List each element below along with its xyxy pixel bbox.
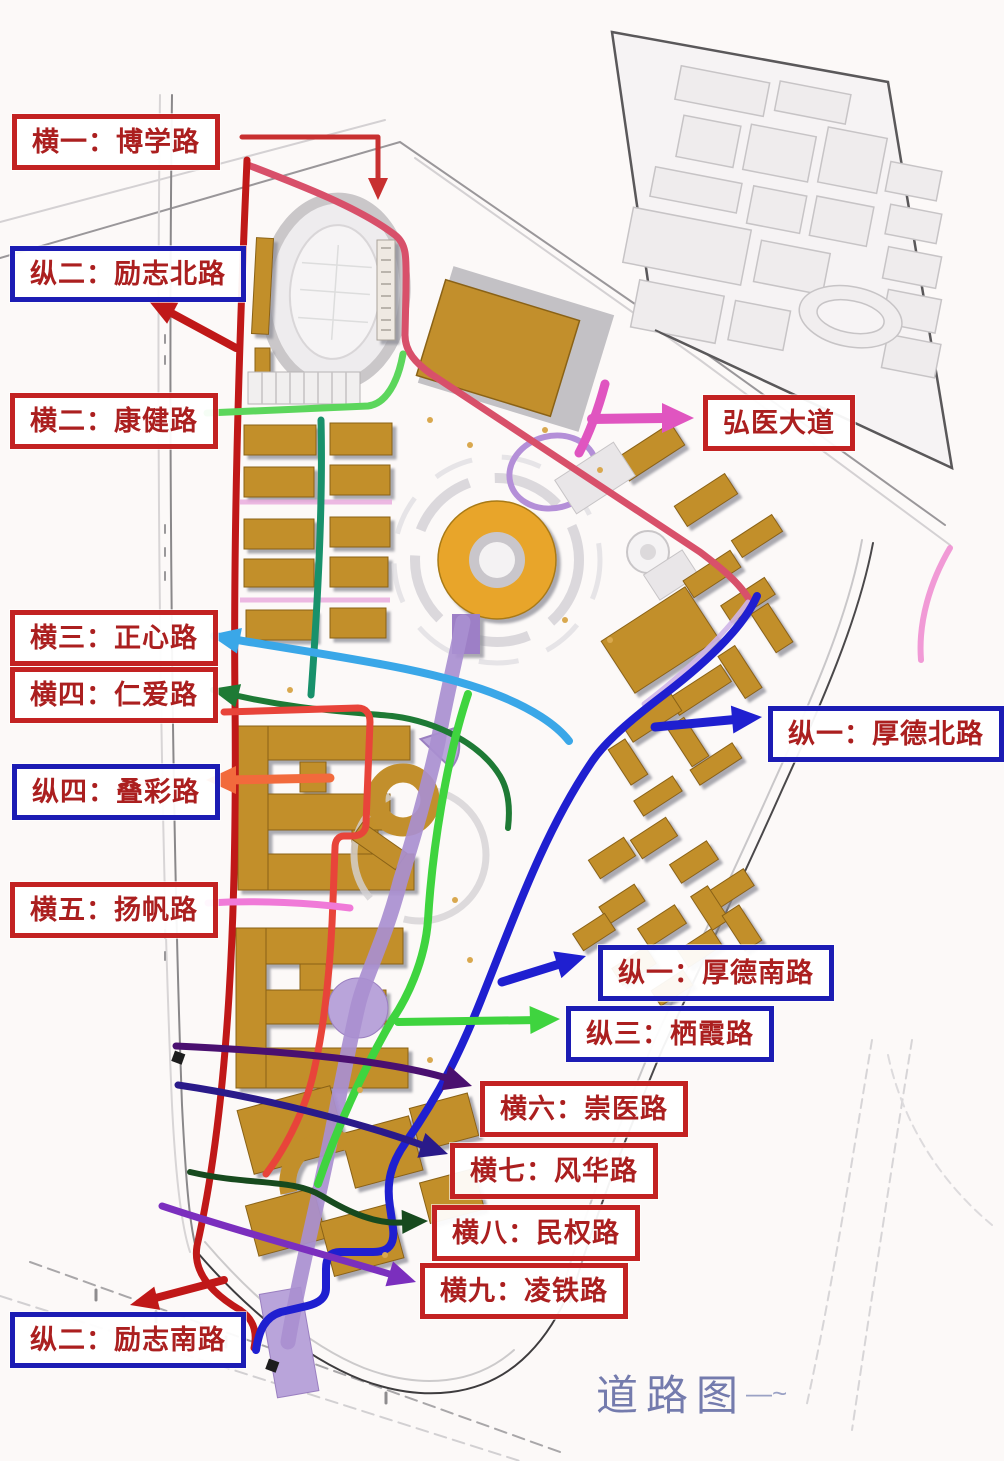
map-title: 道路图—~ [596, 1362, 787, 1423]
road-label-heng9-lingtie: 横九：凌铁路 [420, 1263, 628, 1319]
road-label-zong2-lizhi-s: 纵二：励志南路 [10, 1312, 246, 1368]
houde-north-buildings [601, 550, 793, 816]
road-label-heng8-minquan: 横八：民权路 [432, 1205, 640, 1261]
road-label-zong2-lizhi-n: 纵二：励志北路 [10, 246, 246, 302]
sports-courts [248, 372, 360, 404]
map-title-text: 道路图 [596, 1372, 746, 1419]
road-label-zong3-qixia: 纵三：栖霞路 [566, 1006, 774, 1062]
road-label-heng7-fenghua: 横七：风华路 [450, 1143, 658, 1199]
road-label-heng5-yangfan: 横五：扬帆路 [10, 882, 218, 938]
road-zhengxin [214, 636, 569, 741]
road-label-heng1-boxue: 横一：博学路 [12, 114, 220, 170]
auditorium [416, 266, 614, 432]
road-label-zong4-diecai: 纵四：叠彩路 [12, 764, 220, 820]
road-yangfan [208, 902, 350, 908]
road-label-zong1-houde-s: 纵一：厚德南路 [598, 945, 834, 1001]
road-label-heng6-chongyi: 横六：崇医路 [480, 1081, 688, 1137]
midleft-dorms-upper [238, 726, 414, 890]
road-label-heng2-kangjian: 横二：康健路 [10, 393, 218, 449]
map-title-tail-mark: —~ [746, 1378, 787, 1409]
road-label-hongyi-avenue: 弘医大道 [703, 395, 855, 451]
road-label-zong1-houde-n: 纵一：厚德北路 [768, 706, 1004, 762]
campus-road-map-page: 横一：博学路 纵二：励志北路 横二：康健路 弘医大道 横三：正心路 横四：仁爱路… [0, 0, 1004, 1461]
road-label-heng4-renai: 横四：仁爱路 [10, 667, 218, 723]
road-label-heng3-zhengxin: 横三：正心路 [10, 610, 218, 666]
